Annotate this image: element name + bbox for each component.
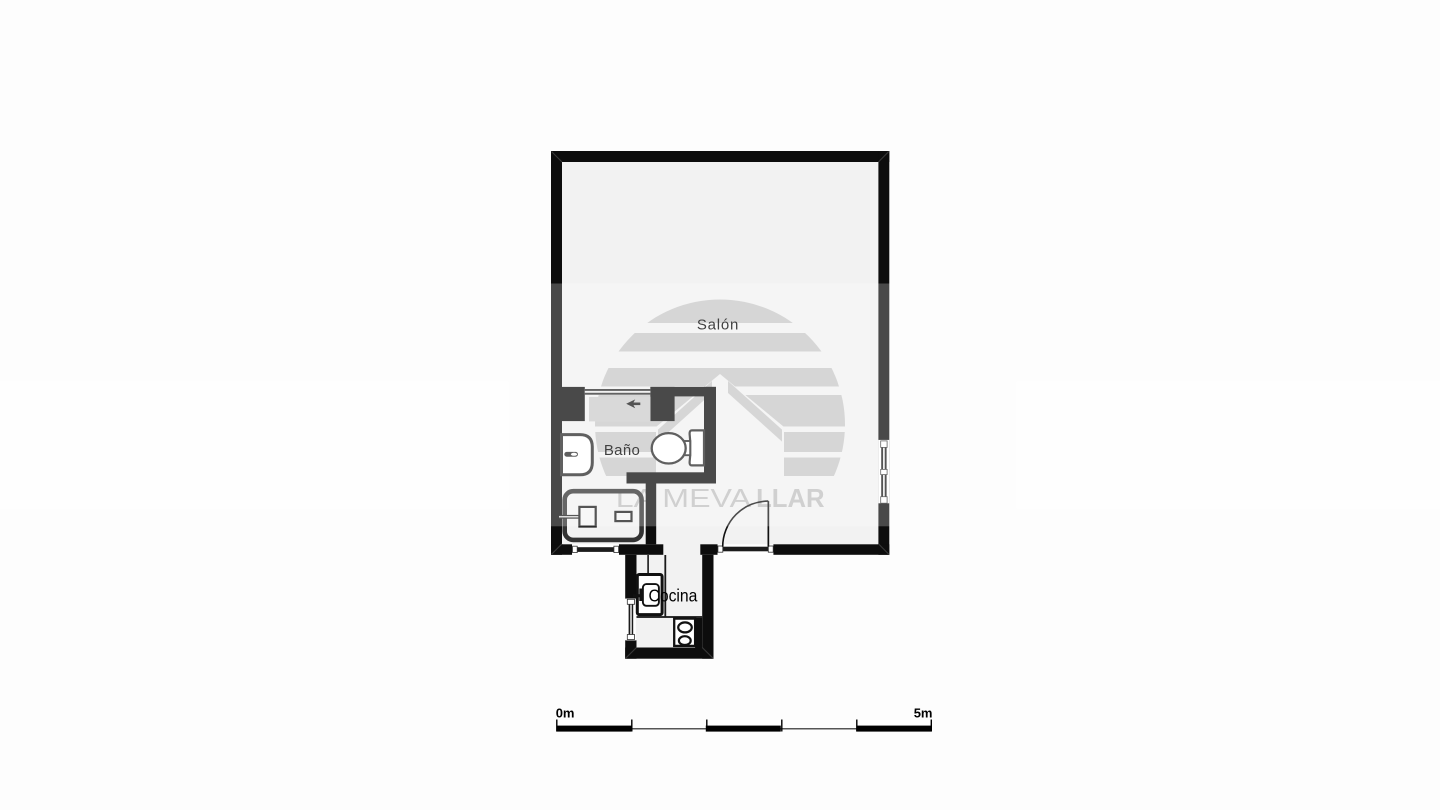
svg-text:0m: 0m bbox=[556, 706, 575, 721]
svg-text:5m: 5m bbox=[914, 706, 933, 721]
svg-text:Cocina: Cocina bbox=[649, 585, 698, 605]
